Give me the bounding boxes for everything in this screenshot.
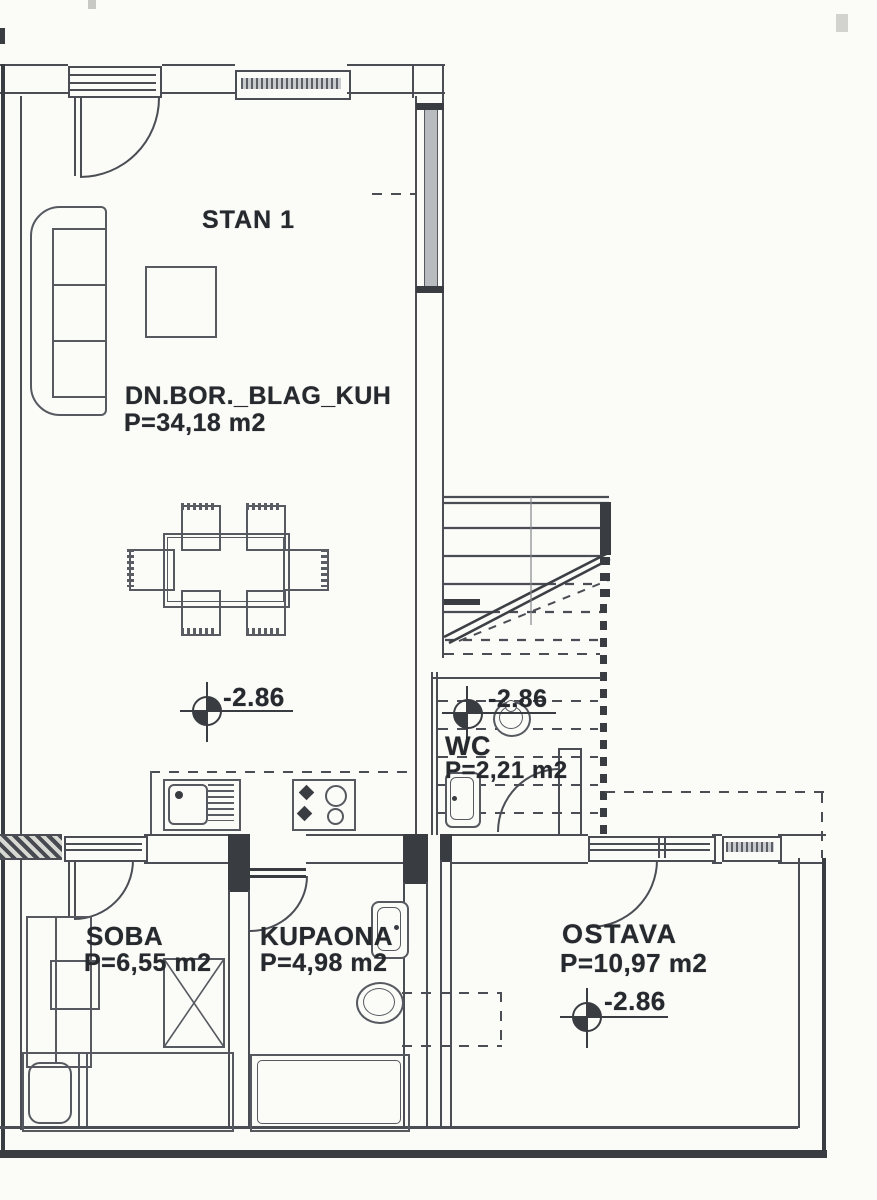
ostava-label: OSTAVA [562,919,678,950]
kupaona-area: P=4,98 m2 [260,949,388,978]
wall-top-segment-mid [162,64,235,94]
ostava-door-frame-line [590,843,710,845]
kitchen-sink-drainer [208,784,234,821]
kitchen-sink-bowl [168,784,208,825]
soba-door-frame-line [66,843,142,845]
soba-bed-divider [78,1054,80,1126]
dining-chair [181,505,221,551]
wall-ostava-left [440,860,442,1128]
dining-chair-back [321,549,328,587]
wall-pier [440,834,452,862]
soba-bed-divider [86,1054,88,1126]
elevation-value-wc: -2.86 [488,685,547,714]
stair-wc-dashed-boundary [600,604,607,834]
soba-bed-pillow [28,1062,72,1124]
wall-bottom-outer [0,1150,827,1158]
apartment-label: STAN 1 [202,206,295,235]
wall-ostava-right-inner [798,858,800,1128]
elevation-marker-ostava [572,1002,602,1032]
ostava-door-divider [658,836,660,858]
wall-left-inner-living [20,96,22,834]
entry-door-leaf [74,98,76,176]
wall-pier [403,860,428,884]
wc-sink-faucet [452,796,457,801]
ostava-window-glazing [726,842,774,852]
wall-pier [228,834,250,892]
wall-top-corner-joint [412,64,414,98]
wall-band-segment [452,834,588,864]
dining-chair-back [246,628,282,635]
ostava-door-divider [664,836,666,858]
dining-chair-back [181,628,217,635]
wall-band-hatched-segment [0,834,62,860]
sofa-seat-cushion [52,284,107,342]
wc-door-leaf-cap [558,748,582,750]
wall-band-segment [306,834,412,864]
scan-artifact [88,0,96,9]
wall-top-segment-left [0,64,68,94]
floor-plan: -2.86 -2.86 -2.86 STAN 1 DN.BOR._BLAG_KU… [0,0,877,1200]
wall-living-right-inner [415,96,417,835]
window-right-cap-bottom [416,286,444,293]
dining-chair-back [181,503,217,510]
sofa-seat-cushion [52,340,107,398]
elevation-marker-wc [453,699,483,729]
stove-burner [325,785,347,807]
sofa-seat-cushion [52,228,107,286]
kitchen-counter-edge [150,771,415,773]
stove-burner [327,808,344,825]
window-right-cap-top [416,103,444,110]
entry-door-frame-line [70,74,156,76]
staircase [443,493,613,661]
coffee-table [145,266,217,338]
stair-bottom-dashed-edge [444,653,600,655]
soba-door-leaf [68,860,70,916]
shaft-dash [402,1045,502,1047]
wall-kupaona-right [426,882,428,1128]
window-right-glazing [424,110,438,286]
kupaona-toilet-bowl [363,988,395,1016]
ostava-door-frame-line [590,849,710,851]
upper-floor-projection-dash [605,791,824,793]
wc-door-leaf [580,748,582,834]
scan-artifact [836,14,848,32]
kupaona-bathtub-inner [257,1060,401,1124]
entry-door-swing-arc [80,98,160,178]
dining-chair [129,549,175,591]
elevation-value-ostava: -2.86 [604,986,666,1017]
wall-wc-left [431,672,433,835]
entry-door-frame-line [70,89,156,91]
elevation-marker-living [192,696,222,726]
kitchen-sink-faucet [175,791,183,799]
wall-ostava-left [450,860,452,1128]
wall-ostava-right-outer [822,858,826,1157]
living-room-label: DN.BOR._BLAG_KUH [125,382,391,411]
soba-label: SOBA [86,921,163,952]
elevation-value-living: -2.86 [223,682,285,713]
wall-band-segment [778,834,826,864]
wc-area: P=2,21 m2 [445,757,568,785]
kupaona-label: KUPAONA [260,921,393,952]
ostava-area: P=10,97 m2 [560,948,707,979]
hidden-edge-dash [372,193,416,195]
kupaona-door-leaf [248,868,306,871]
wall-wc-left-inner [436,672,438,835]
entry-door-frame-line [70,82,156,84]
shaft-dash [500,992,502,1047]
ostava-door-swing-arc [590,860,658,928]
soba-door-frame-line [66,849,142,851]
living-room-area: P=34,18 m2 [124,409,266,438]
kitchen-counter-side [150,771,152,834]
stove [292,779,356,831]
soba-area: P=6,55 m2 [84,949,212,978]
dining-chair-back [127,549,134,587]
wall-pier [403,834,428,862]
window-top-glazing [241,78,341,89]
scan-artifact [0,28,5,44]
wall-left-outer [1,64,5,1156]
dining-chair [246,505,286,551]
soba-door-swing-arc [74,860,134,920]
kupaona-sink-faucet [394,925,399,930]
wall-wc-top [431,677,601,679]
stair-edge-bar [600,502,611,555]
shaft-dash [402,992,502,994]
dining-chair-back [246,503,282,510]
upper-floor-projection-dash [821,793,823,858]
wall-top-segment-right [347,64,445,94]
